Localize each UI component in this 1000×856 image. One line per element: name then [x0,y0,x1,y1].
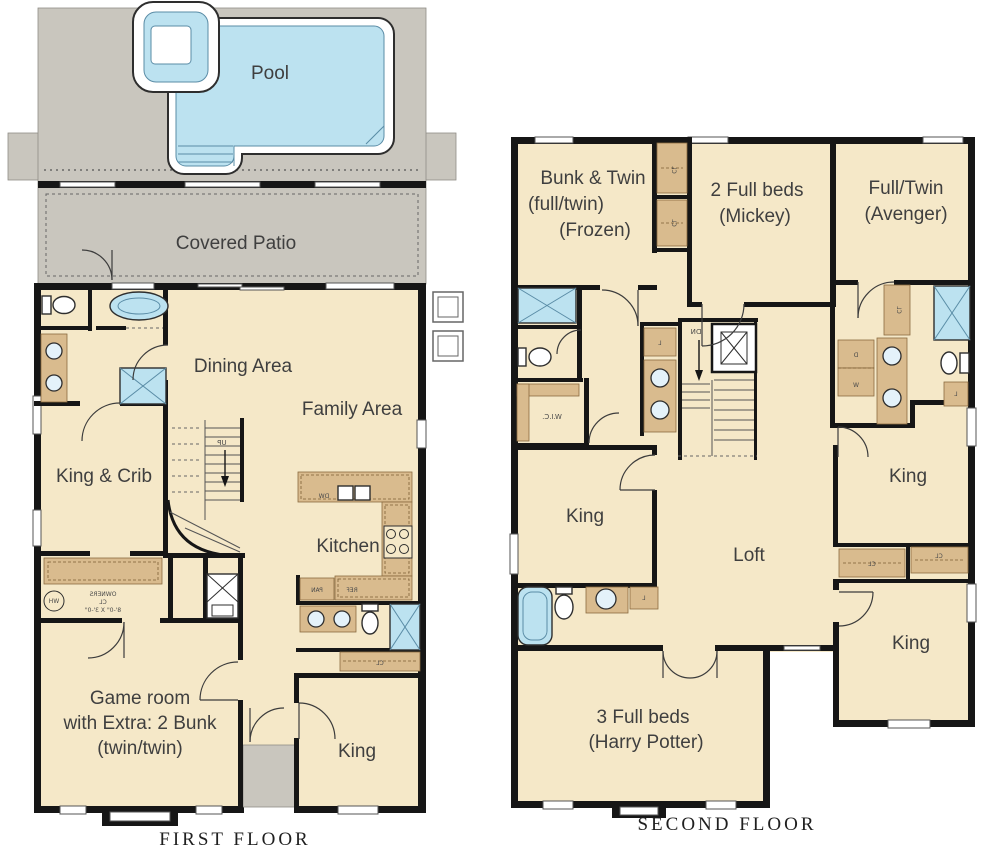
pantry-label: PAN [311,587,323,594]
toilet-icon [518,348,551,366]
covered-patio-label: Covered Patio [176,233,296,254]
closet-label: CL [935,553,943,560]
loft-label: Loft [733,545,765,566]
family-label: Family Area [302,399,403,420]
avenger-label-1: Full/Twin [869,178,944,199]
game-room-label-3: (twin/twin) [97,738,183,759]
spa [133,2,219,92]
owners-label-2: CL [99,599,107,606]
closet-label: CL [670,166,677,174]
frozen-label-1: Bunk & Twin [540,168,645,189]
washer-label: W [853,382,859,389]
washer-icon: W [838,368,874,396]
water-heater-label: WH [49,598,59,605]
toilet-icon [941,352,969,374]
shower-icon [120,368,166,404]
shower-icon [518,288,576,323]
pool: Pool [133,2,394,174]
equipment-pads [433,292,463,361]
kitchen-sink [338,486,353,500]
refrigerator-label: REF [346,587,358,594]
stove-icon [384,526,412,558]
toilet-icon [362,604,378,634]
toilet-icon [42,296,75,314]
dryer-label: D [853,352,858,359]
king-left-label: King [566,506,604,527]
mickey-label-2: (Mickey) [719,206,791,227]
first-floor-plan: Pool Covered Patio [8,2,456,850]
covered-patio: Covered Patio [38,181,426,284]
frozen-label-3: (Frozen) [559,220,631,241]
dining-label: Dining Area [194,356,293,377]
harry-label-1: 3 Full beds [597,707,690,728]
second-floor-plan: CL CL W.I.C. [510,137,976,835]
closet-label: CL [868,561,876,568]
floor-plan-image: Pool Covered Patio [0,0,1000,856]
kitchen-label: Kitchen [316,536,379,557]
shower-icon [934,286,970,340]
first-floor-title: FIRST FLOOR [159,829,310,850]
bathtub-icon [518,587,552,645]
harry-label-2: (Harry Potter) [588,732,703,753]
closet-label: CL [670,219,677,227]
toilet-icon [555,587,573,619]
closet-label: CL [376,660,384,667]
wic-label: W.I.C. [542,413,562,421]
king-upper-right-label: King [889,466,927,487]
mech-closet-icon [207,574,238,618]
king-lower-right-label: King [892,633,930,654]
pool-label: Pool [251,63,289,84]
hall-vanity: L [644,328,676,432]
owners-label-3: 8'-0" X 3'-0" [85,607,122,614]
second-floor-title: SECOND FLOOR [637,814,816,835]
dryer-icon: D [838,340,874,368]
owners-label-1: OWNERS [89,591,116,598]
king-crib-label: King & Crib [56,466,152,487]
up-label: UP [217,439,226,447]
shower-icon [390,604,420,650]
game-room-label-1: Game room [90,688,190,709]
closet-label: CL [895,306,902,314]
king-ff-label: King [338,741,376,762]
bathtub-icon [110,292,168,320]
entry-porch [243,745,295,807]
avenger-label-2: (Avenger) [864,204,947,225]
dishwasher-label: DW [319,493,330,500]
game-room-label-2: with Extra: 2 Bunk [62,713,217,734]
frozen-label-2: (full/twin) [528,194,604,215]
mickey-label-1: 2 Full beds [711,180,804,201]
vanity-sinks [41,334,67,402]
dn-label: DN [691,328,702,336]
king-closets: CL CL [839,547,968,577]
